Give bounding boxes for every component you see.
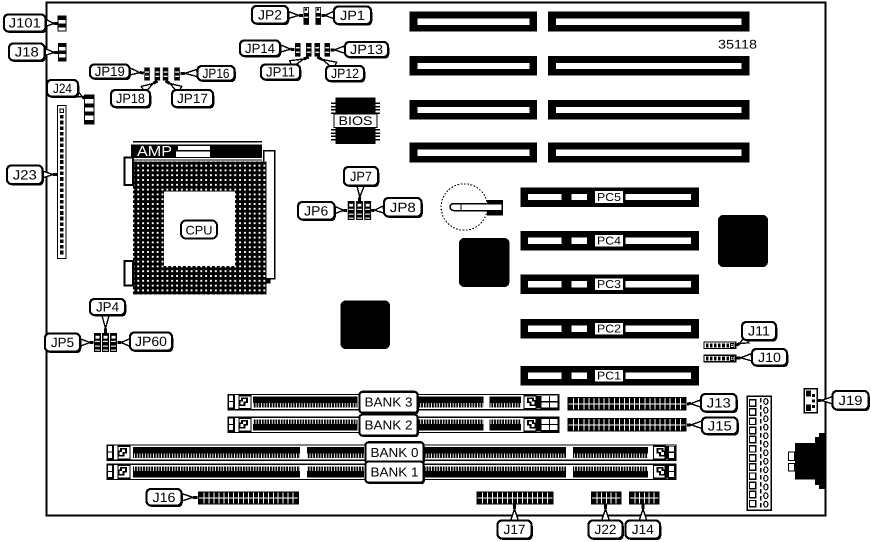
svg-text:J101: J101 (9, 16, 41, 31)
svg-text:BANK 0: BANK 0 (371, 445, 419, 460)
svg-text:JP60: JP60 (135, 334, 167, 349)
svg-text:BANK 2: BANK 2 (365, 418, 413, 433)
svg-text:J11: J11 (748, 324, 770, 339)
svg-text:J17: J17 (504, 522, 526, 537)
svg-text:JP14: JP14 (245, 41, 275, 56)
svg-text:BANK 3: BANK 3 (365, 395, 413, 410)
svg-text:JP5: JP5 (51, 335, 74, 350)
svg-text:J13: J13 (707, 395, 731, 410)
svg-text:JP17: JP17 (177, 91, 208, 106)
svg-text:JP19: JP19 (95, 64, 125, 79)
svg-text:J16: J16 (153, 490, 176, 505)
svg-text:JP12: JP12 (331, 66, 359, 81)
svg-text:CPU: CPU (186, 224, 213, 238)
svg-text:J10: J10 (758, 350, 781, 365)
svg-text:JP2: JP2 (258, 7, 282, 22)
svg-text:J19: J19 (839, 393, 863, 408)
svg-text:J18: J18 (15, 45, 39, 60)
svg-text:J24: J24 (53, 81, 72, 96)
svg-text:PC5: PC5 (597, 192, 621, 204)
svg-text:JP4: JP4 (96, 300, 119, 315)
svg-text:JP1: JP1 (340, 8, 365, 23)
svg-text:J22: J22 (595, 522, 617, 537)
svg-text:PC4: PC4 (597, 236, 622, 248)
svg-text:JP18: JP18 (116, 91, 145, 106)
svg-text:JP6: JP6 (304, 203, 328, 218)
svg-text:J14: J14 (632, 522, 654, 537)
svg-text:JP8: JP8 (390, 200, 416, 215)
svg-text:BIOS: BIOS (339, 114, 373, 128)
svg-text:JP7: JP7 (350, 169, 372, 184)
svg-text:JP16: JP16 (203, 66, 230, 81)
svg-text:JP11: JP11 (266, 65, 295, 80)
svg-text:35118: 35118 (718, 38, 757, 52)
svg-text:PC3: PC3 (597, 279, 621, 291)
svg-text:AMP: AMP (137, 144, 172, 160)
svg-text:J23: J23 (13, 167, 37, 182)
svg-text:BANK 1: BANK 1 (371, 465, 419, 480)
svg-text:PC1: PC1 (597, 371, 621, 383)
svg-text:JP13: JP13 (350, 42, 383, 57)
svg-text:J15: J15 (708, 418, 732, 433)
svg-text:PC2: PC2 (597, 324, 621, 336)
